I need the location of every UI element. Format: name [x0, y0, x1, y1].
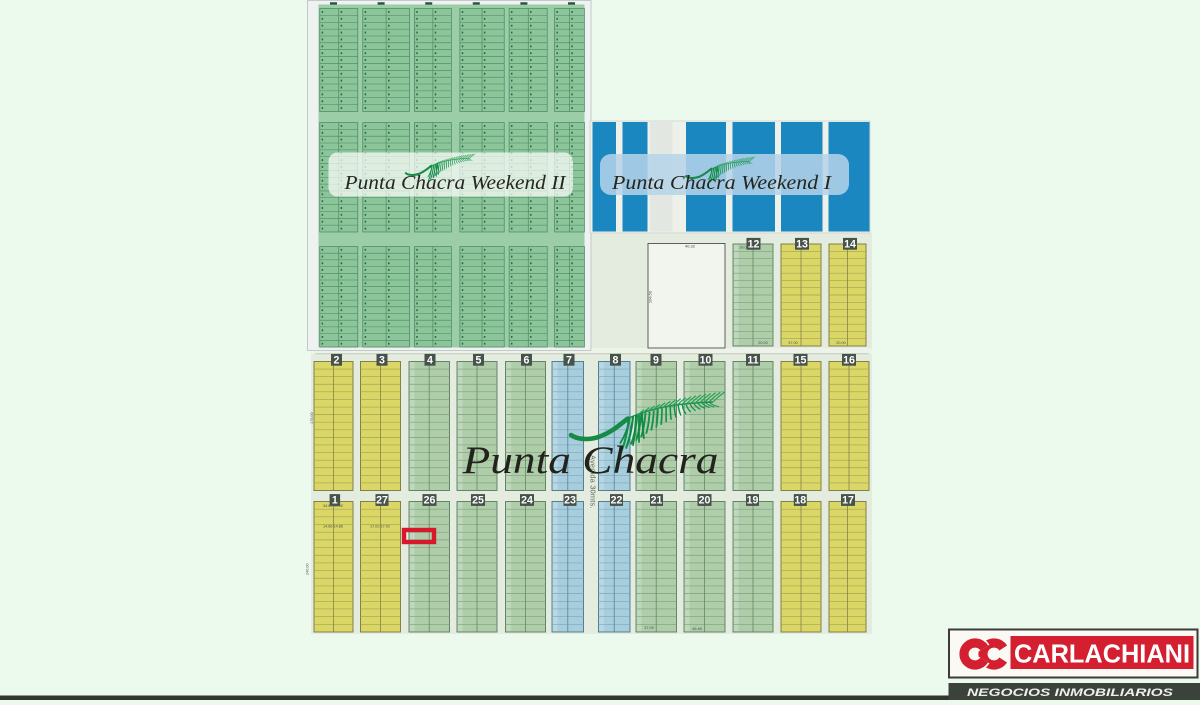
svg-text:34.88 34.00: 34.88 34.00 [323, 504, 343, 508]
svg-text:104.50: 104.50 [648, 290, 653, 303]
svg-text:17.02 17.02: 17.02 17.02 [370, 525, 390, 529]
svg-text:24: 24 [521, 495, 533, 507]
svg-text:Punta Chacra Weekend II: Punta Chacra Weekend II [343, 172, 566, 194]
svg-text:22: 22 [611, 495, 623, 507]
svg-text:3: 3 [379, 355, 385, 367]
svg-text:175.00: 175.00 [310, 412, 314, 424]
svg-text:20: 20 [699, 495, 711, 507]
svg-text:10: 10 [700, 355, 712, 367]
svg-text:8: 8 [613, 355, 619, 367]
svg-text:23: 23 [564, 495, 576, 507]
svg-text:25: 25 [472, 495, 484, 507]
svg-text:13: 13 [796, 239, 808, 251]
svg-text:Punta Chacra: Punta Chacra [461, 439, 718, 482]
svg-text:27: 27 [376, 495, 388, 507]
svg-text:40.32: 40.32 [685, 244, 696, 249]
svg-text:5: 5 [476, 355, 482, 367]
svg-text:16: 16 [843, 355, 855, 367]
svg-text:46.46: 46.46 [692, 627, 702, 631]
svg-text:9: 9 [653, 355, 659, 367]
svg-text:4: 4 [427, 355, 433, 367]
svg-text:240.00: 240.00 [306, 563, 310, 575]
svg-text:20.00: 20.00 [836, 341, 846, 345]
svg-text:2: 2 [334, 355, 340, 367]
svg-text:26: 26 [424, 495, 436, 507]
svg-text:6: 6 [524, 355, 530, 367]
svg-text:Punta Chacra Weekend I: Punta Chacra Weekend I [611, 172, 833, 194]
svg-text:37.00: 37.00 [788, 341, 798, 345]
svg-text:CARLACHIANI: CARLACHIANI [1014, 638, 1190, 668]
svg-text:12: 12 [748, 239, 760, 251]
svg-text:21: 21 [651, 495, 663, 507]
svg-text:18: 18 [794, 495, 806, 507]
svg-text:20.00: 20.00 [758, 341, 768, 345]
svg-text:11: 11 [747, 355, 758, 367]
svg-text:37.09: 37.09 [644, 626, 654, 630]
svg-text:14: 14 [844, 239, 856, 251]
svg-text:19: 19 [747, 495, 759, 507]
svg-text:NEGOCIOS INMOBILIARIOS: NEGOCIOS INMOBILIARIOS [967, 687, 1174, 699]
svg-text:15: 15 [795, 355, 807, 367]
svg-text:7: 7 [566, 355, 572, 367]
svg-text:14.86 14.86: 14.86 14.86 [323, 525, 343, 529]
svg-text:28.07: 28.07 [739, 246, 749, 250]
svg-text:17: 17 [842, 495, 854, 507]
